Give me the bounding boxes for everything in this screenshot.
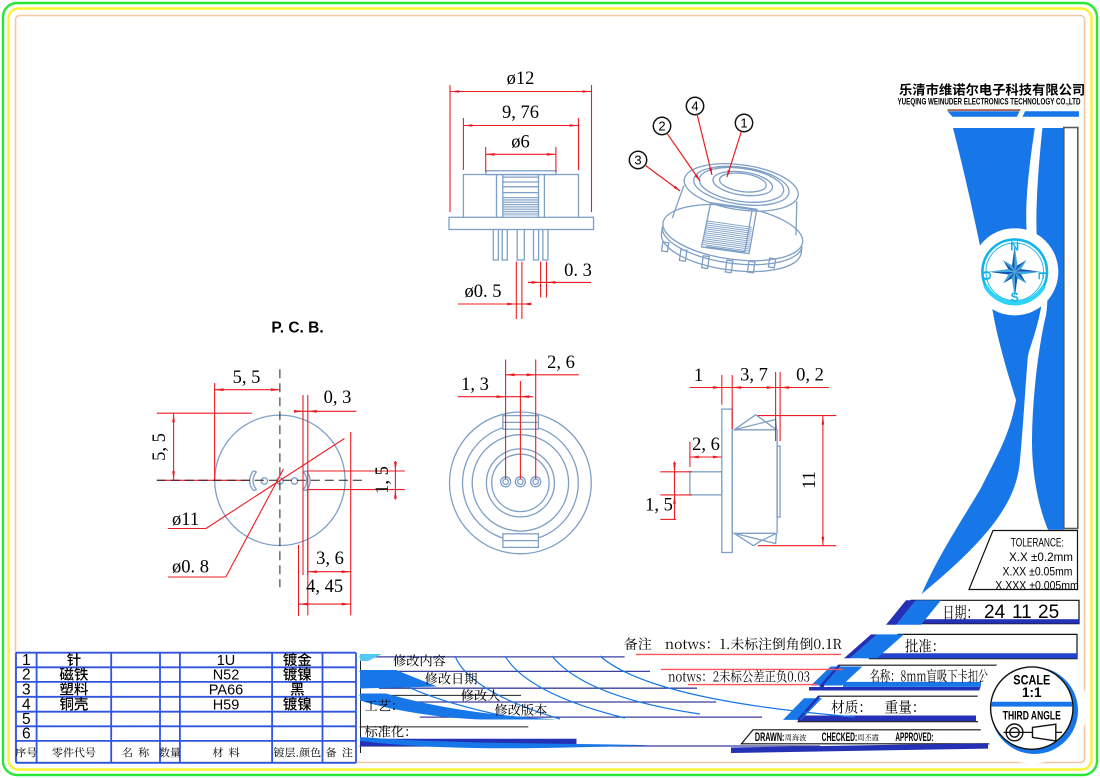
svg-text:ø12: ø12 <box>507 69 535 89</box>
svg-text:O: O <box>980 270 994 280</box>
svg-text:25: 25 <box>1038 602 1059 623</box>
svg-text:N: N <box>1010 240 1019 254</box>
svg-text:1, 5: 1, 5 <box>373 466 393 494</box>
svg-text:1, 3: 1, 3 <box>461 375 489 395</box>
svg-text:ø11: ø11 <box>172 510 199 530</box>
svg-text:YUEQING WEINUDER ELECTRONICS T: YUEQING WEINUDER ELECTRONICS TECHNOLOGY … <box>898 96 1081 107</box>
svg-text:5, 5: 5, 5 <box>233 368 261 388</box>
svg-text:5, 5: 5, 5 <box>150 433 170 461</box>
svg-text:1: 1 <box>694 366 703 386</box>
svg-text:2: 2 <box>658 119 665 134</box>
svg-text:11: 11 <box>1012 602 1032 623</box>
svg-text:3: 3 <box>634 153 641 168</box>
svg-text:E: E <box>1036 271 1050 279</box>
svg-text:1U: 1U <box>217 653 236 669</box>
svg-text:3, 7: 3, 7 <box>740 366 768 386</box>
svg-text:X.XXX ±0.005mm: X.XXX ±0.005mm <box>995 578 1079 592</box>
svg-text:0. 3: 0. 3 <box>564 261 592 281</box>
svg-text:H59: H59 <box>213 697 240 713</box>
svg-text:0, 3: 0, 3 <box>324 388 352 408</box>
svg-text:P. C. B.: P. C. B. <box>271 320 323 337</box>
svg-text:X.X ±0.2mm: X.X ±0.2mm <box>1009 550 1073 564</box>
svg-text:ø6: ø6 <box>511 133 530 153</box>
svg-text:2, 6: 2, 6 <box>547 353 575 373</box>
svg-text:6: 6 <box>22 726 31 743</box>
svg-text:24: 24 <box>984 602 1006 623</box>
svg-text:1: 1 <box>740 116 747 131</box>
svg-text:X.XX ±0.05mm: X.XX ±0.05mm <box>1003 565 1073 579</box>
svg-text:9, 76: 9, 76 <box>502 103 539 123</box>
svg-text:4, 45: 4, 45 <box>306 577 343 597</box>
svg-text:TOLERANCE:: TOLERANCE: <box>1011 536 1064 550</box>
svg-text:ø0. 8: ø0. 8 <box>172 558 209 578</box>
svg-text:S: S <box>1011 291 1019 305</box>
svg-text:APPROVED:: APPROVED: <box>895 732 933 744</box>
svg-text:CHECKED:: CHECKED: <box>822 732 858 744</box>
svg-text:1, 5: 1, 5 <box>645 496 673 516</box>
svg-text:PA66: PA66 <box>209 682 243 698</box>
svg-text:N52: N52 <box>213 668 240 684</box>
svg-text:THIRD ANGLE: THIRD ANGLE <box>1003 709 1061 723</box>
svg-text:DRAWN:: DRAWN: <box>755 732 785 744</box>
svg-text:0, 2: 0, 2 <box>796 366 824 386</box>
svg-text:2, 6: 2, 6 <box>692 435 720 455</box>
svg-text:4: 4 <box>691 99 698 114</box>
svg-text:11: 11 <box>800 471 820 489</box>
svg-text:3, 6: 3, 6 <box>316 549 344 569</box>
svg-text:ø0. 5: ø0. 5 <box>465 282 502 302</box>
svg-text:1:1: 1:1 <box>1022 685 1042 700</box>
